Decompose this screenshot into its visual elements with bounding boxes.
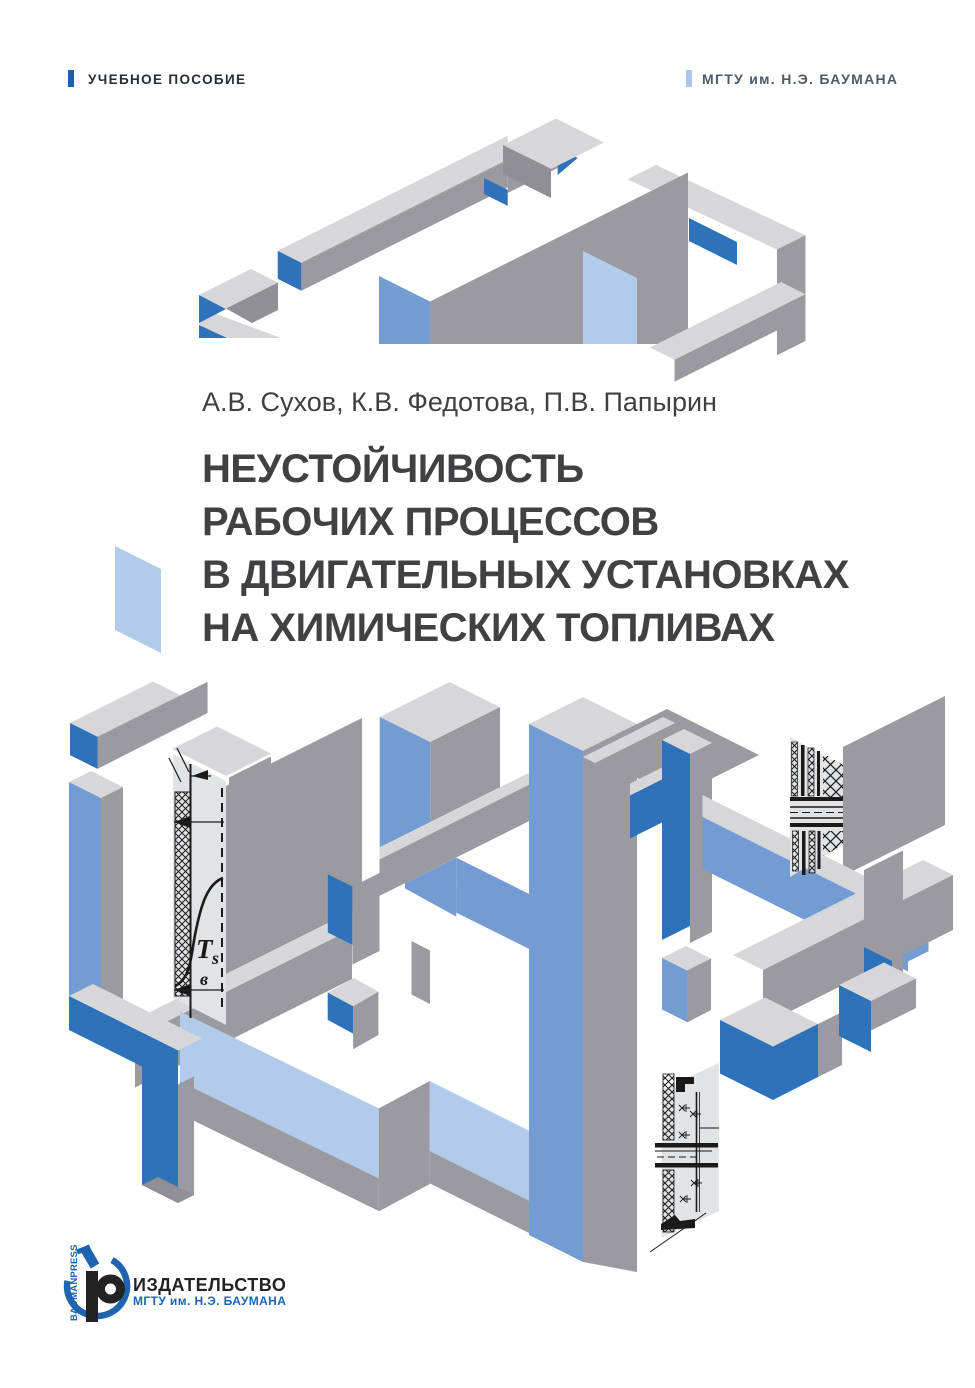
svg-text:в: в [200, 969, 208, 989]
svg-text:s: s [211, 948, 219, 968]
